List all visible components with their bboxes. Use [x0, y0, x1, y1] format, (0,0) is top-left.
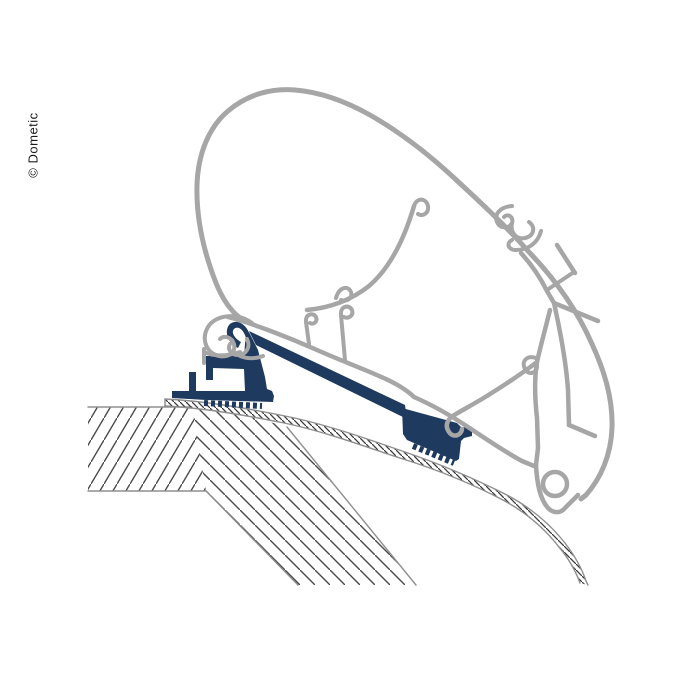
inner-sweep-side-hook	[336, 288, 351, 301]
chamber-wall-right	[554, 303, 569, 425]
adapter-beam	[249, 331, 407, 419]
roof-panel-sloped	[192, 407, 416, 585]
adapter-profile-diagram	[0, 0, 700, 700]
clip-curl-b	[512, 222, 534, 238]
strut-to-arc-lower	[569, 425, 595, 436]
strut-hook-small	[306, 314, 317, 344]
strut-hook-tall	[341, 307, 352, 360]
adapter-base-serration	[204, 403, 262, 406]
inner-sweep-top-curl	[414, 200, 428, 215]
chamber-wall-left	[535, 310, 550, 465]
roof-cross-section	[88, 399, 588, 585]
diagram-page: © Dometic	[0, 0, 700, 700]
chamber-wall-b	[557, 245, 575, 273]
foot-circle-hook	[543, 472, 567, 496]
inner-sweep-wall	[307, 206, 414, 310]
strut-to-arc-upper	[554, 303, 598, 321]
roof-panel-horizontal	[88, 407, 206, 491]
